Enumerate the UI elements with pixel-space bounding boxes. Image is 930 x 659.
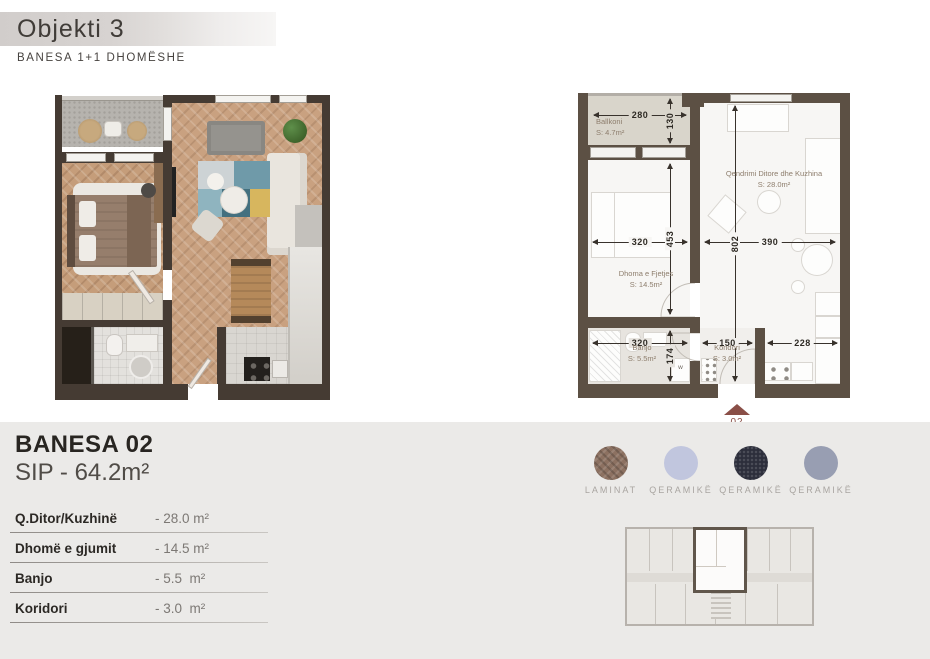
- window: [114, 153, 154, 162]
- room-label-ballkoni: Ballkoni S: 4.7m²: [596, 117, 658, 139]
- kitchen-sink: [273, 361, 287, 377]
- window: [215, 95, 271, 103]
- table-row: Q.Ditor/Kuzhinë - 28.0 m²: [15, 504, 260, 534]
- room-name: Q.Ditor/Kuzhinë: [15, 511, 117, 526]
- balcony-rail: [62, 96, 163, 100]
- mini-plan-line: [655, 584, 656, 624]
- wall: [755, 328, 765, 384]
- room-label-koridori: Koridori S: 3.0m²: [698, 343, 756, 365]
- plant: [283, 119, 307, 143]
- dim-living-width: 390: [704, 238, 836, 246]
- window: [66, 153, 106, 162]
- mini-plan-highlighted-unit: [693, 527, 747, 593]
- laminat-swatch-circle: [594, 446, 628, 480]
- mini-plan-line: [790, 529, 791, 571]
- room-name: Koridori: [15, 601, 68, 616]
- material-qeramike-1: QERAMIKË: [646, 446, 716, 495]
- dining-bench: [231, 259, 271, 266]
- vanity: [127, 335, 157, 351]
- technical-floor-plan: w 280 130 320 453 390 802 320: [578, 93, 850, 433]
- room-area-value: - 3.0 m²: [155, 601, 205, 616]
- wall: [690, 103, 700, 283]
- bed-headboard: [67, 195, 75, 267]
- window: [642, 147, 686, 158]
- room-name: Dhomë e gjumit: [15, 541, 116, 556]
- unit-area: SIP - 64.2m²: [15, 459, 149, 487]
- row-divider: [10, 622, 268, 623]
- wall: [578, 384, 718, 398]
- room-area-value: - 28.0 m²: [155, 511, 209, 526]
- room-area-value: - 5.5 m²: [155, 571, 205, 586]
- wicker-chair: [127, 121, 147, 141]
- sink-mirror: [131, 357, 151, 377]
- material-label: LAMINAT: [576, 485, 646, 495]
- pillow: [79, 235, 96, 261]
- unit-name: BANESA 02: [15, 431, 153, 459]
- qeramike-swatch-circle: [664, 446, 698, 480]
- gray-sofa: [207, 121, 265, 155]
- wall: [690, 317, 700, 333]
- mini-plan-line: [769, 529, 770, 571]
- mini-plan-line: [747, 529, 748, 571]
- table-row: Koridori - 3.0 m²: [15, 594, 260, 624]
- tv-panel: [172, 167, 176, 217]
- bed-throw: [127, 195, 151, 267]
- wall: [163, 300, 172, 384]
- wall: [55, 384, 188, 400]
- dim-kitchen-width: 228: [767, 339, 838, 347]
- brochure-page: Objekti 3 BANESA 1+1 DHOMËSHE: [0, 0, 930, 659]
- dim-balcony-depth: 130: [666, 98, 674, 144]
- material-label: QERAMIKË: [786, 485, 856, 495]
- mini-unit-line: [716, 530, 717, 566]
- window: [590, 147, 636, 158]
- kitchen-counter: [288, 247, 322, 384]
- mini-plan-line: [685, 584, 686, 624]
- material-laminat: LAMINAT: [576, 446, 646, 495]
- row-divider: [10, 562, 268, 563]
- wall: [578, 317, 690, 328]
- rug-patch: [250, 189, 270, 217]
- room-area-value: - 14.5 m²: [155, 541, 209, 556]
- window: [279, 95, 307, 103]
- room-label-living: Qendrimi Ditore dhe Kuzhina S: 28.0m²: [711, 169, 837, 191]
- entrance-gap: [188, 384, 218, 400]
- pillow: [79, 201, 96, 227]
- mini-plan-line: [672, 529, 673, 571]
- material-qeramike-2: QERAMIKË: [716, 446, 786, 495]
- dining-table: [231, 266, 271, 316]
- coffee-table: [221, 187, 247, 213]
- wall: [755, 384, 850, 398]
- dining-bench: [231, 316, 271, 323]
- stove: [244, 357, 270, 381]
- room-label-banjo: Banjo S: 5.5m²: [602, 343, 682, 365]
- mini-plan-stairs: [711, 589, 731, 619]
- toilet: [107, 335, 122, 355]
- wall: [578, 93, 588, 391]
- balcony-table: [105, 122, 121, 136]
- shower: [62, 327, 94, 384]
- mini-unit-line: [696, 566, 726, 567]
- row-divider: [10, 532, 268, 533]
- balcony-rail: [588, 93, 690, 96]
- window: [730, 94, 792, 102]
- mini-plan-line: [649, 529, 650, 571]
- title-bar: Objekti 3: [0, 12, 276, 46]
- wall: [217, 327, 226, 384]
- rug-patch: [234, 161, 270, 189]
- page-title: Objekti 3: [17, 15, 125, 44]
- room-name: Banjo: [15, 571, 53, 586]
- dim-bedroom-depth: 453: [666, 163, 674, 315]
- wall: [840, 93, 850, 391]
- desk-chair: [141, 183, 156, 198]
- wall: [55, 95, 62, 400]
- table-row: Dhomë e gjumit - 14.5 m²: [15, 534, 260, 564]
- balcony-door: [163, 107, 172, 141]
- side-table: [207, 173, 224, 190]
- material-qeramike-3: QERAMIKË: [786, 446, 856, 495]
- wall: [55, 320, 163, 327]
- table-row: Banjo - 5.5 m²: [15, 564, 260, 594]
- material-swatches: LAMINAT QERAMIKË QERAMIKË QERAMIKË: [576, 446, 856, 495]
- room-area-table: Q.Ditor/Kuzhinë - 28.0 m² Dhomë e gjumit…: [15, 504, 260, 624]
- material-label: QERAMIKË: [716, 485, 786, 495]
- mini-plan-line: [777, 584, 778, 624]
- render-3d-floor-plan: [55, 95, 330, 400]
- entrance-marker-icon: [724, 404, 750, 415]
- qeramike-swatch-circle: [734, 446, 768, 480]
- page-subtitle: BANESA 1+1 DHOMËSHE: [17, 52, 186, 64]
- room-label-bedroom: Dhoma e Fjetjes S: 14.5m²: [596, 269, 696, 291]
- mini-floor-plan: [625, 527, 814, 626]
- kitchen-upper-unit: [295, 205, 322, 247]
- wall: [322, 95, 330, 400]
- wicker-chair: [78, 119, 102, 143]
- wall: [218, 384, 330, 400]
- material-label: QERAMIKË: [646, 485, 716, 495]
- row-divider: [10, 592, 268, 593]
- qeramike-swatch-circle: [804, 446, 838, 480]
